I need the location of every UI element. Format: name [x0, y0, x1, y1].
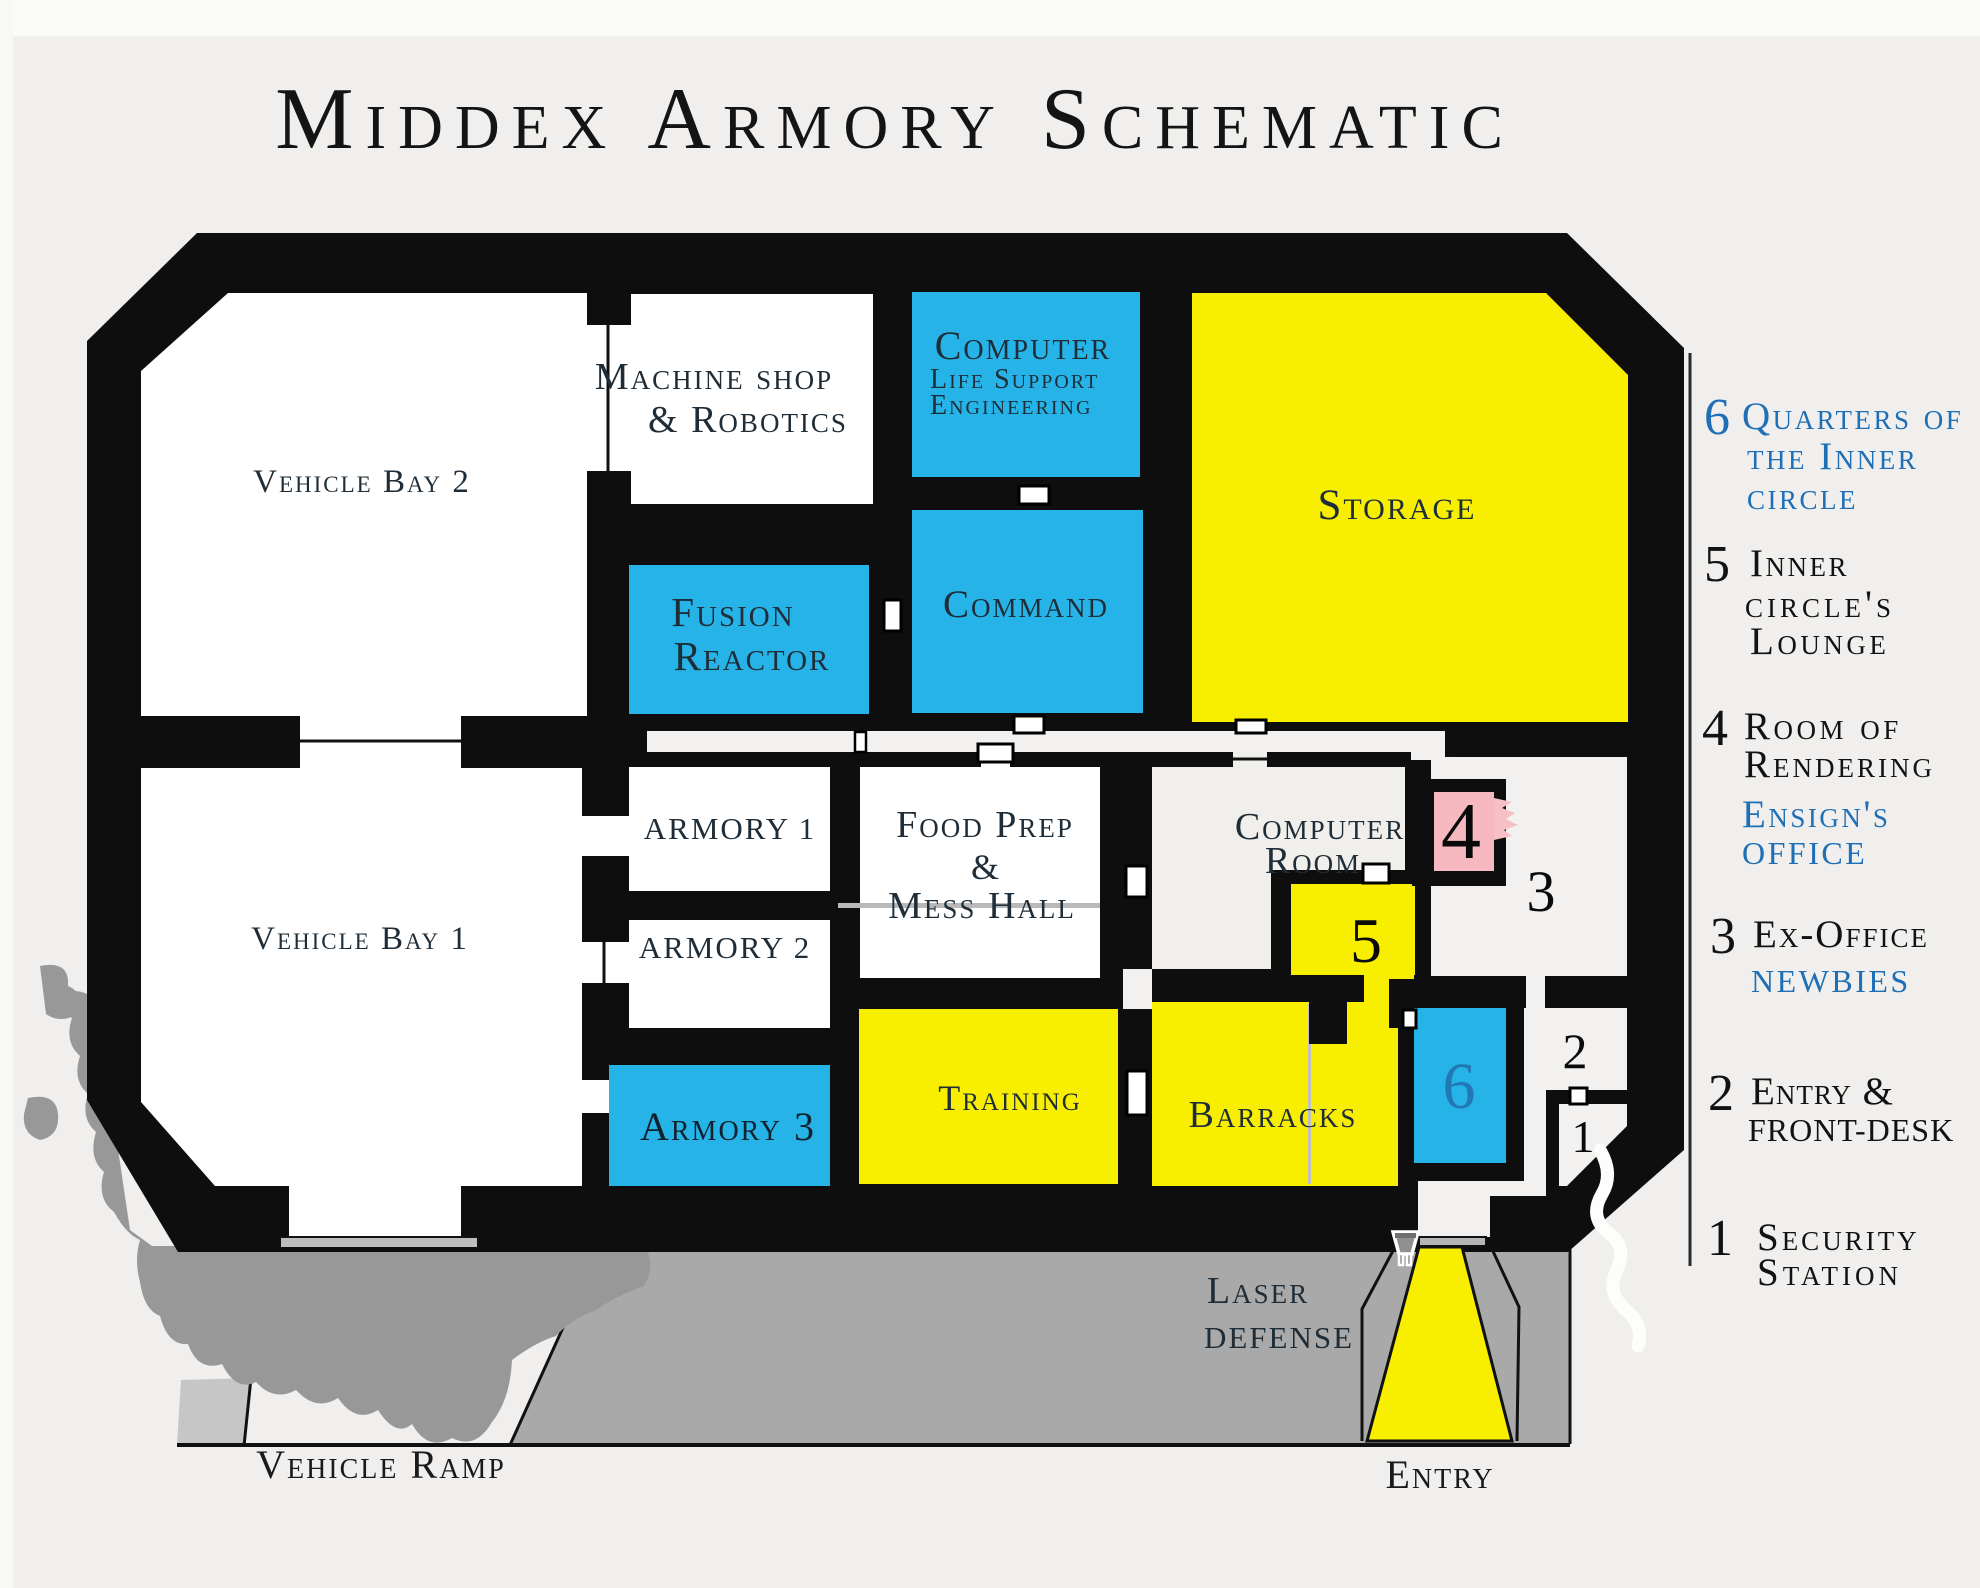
- svg-text:Entry &: Entry &: [1751, 1070, 1894, 1113]
- svg-text:Storage: Storage: [1317, 482, 1476, 529]
- svg-text:4: 4: [1441, 788, 1481, 876]
- svg-text:6: 6: [1443, 1050, 1476, 1123]
- svg-text:Vehicle Bay 1: Vehicle Bay 1: [251, 921, 469, 957]
- svg-text:OFFICE: OFFICE: [1742, 835, 1867, 871]
- svg-text:Training: Training: [938, 1078, 1082, 1118]
- svg-text:1: 1: [1707, 1210, 1733, 1267]
- svg-text:Laser: Laser: [1207, 1270, 1309, 1312]
- svg-text:Barracks: Barracks: [1189, 1094, 1358, 1136]
- svg-text:Rendering: Rendering: [1744, 743, 1935, 786]
- svg-text:the Inner: the Inner: [1747, 435, 1918, 478]
- svg-text:Quarters of: Quarters of: [1742, 395, 1963, 438]
- svg-text:Entry: Entry: [1385, 1452, 1494, 1497]
- svg-text:Inner: Inner: [1750, 542, 1849, 585]
- svg-text:&: &: [971, 847, 1001, 887]
- svg-text:NEWBIES: NEWBIES: [1751, 963, 1911, 999]
- svg-text:& Robotics: & Robotics: [648, 399, 848, 441]
- svg-text:ARMORY 2: ARMORY 2: [639, 930, 811, 965]
- svg-text:circle: circle: [1747, 475, 1858, 518]
- svg-text:DEFENSE: DEFENSE: [1204, 1320, 1354, 1355]
- svg-text:3: 3: [1710, 908, 1736, 965]
- svg-text:Lounge: Lounge: [1750, 620, 1889, 663]
- svg-text:6: 6: [1704, 389, 1730, 446]
- svg-text:Middex Armory Schematic: Middex Armory Schematic: [275, 71, 1515, 168]
- svg-text:Computer: Computer: [935, 323, 1111, 368]
- svg-text:5: 5: [1704, 536, 1730, 593]
- svg-text:2: 2: [1563, 1023, 1588, 1079]
- svg-text:Vehicle Bay 2: Vehicle Bay 2: [253, 464, 471, 500]
- svg-text:3: 3: [1527, 859, 1556, 924]
- svg-text:Armory 3: Armory 3: [640, 1104, 816, 1149]
- svg-text:Station: Station: [1757, 1251, 1902, 1294]
- svg-text:Ensign's: Ensign's: [1742, 793, 1890, 836]
- svg-text:Ex-Office: Ex-Office: [1753, 913, 1929, 956]
- svg-text:Food Prep: Food Prep: [896, 804, 1074, 846]
- svg-text:Room: Room: [1265, 840, 1361, 882]
- svg-text:4: 4: [1702, 700, 1728, 757]
- svg-text:Command: Command: [943, 583, 1109, 626]
- svg-text:Vehicle Ramp: Vehicle Ramp: [256, 1442, 506, 1487]
- svg-text:Machine shop: Machine shop: [595, 356, 833, 398]
- svg-text:FRONT-DESK: FRONT-DESK: [1748, 1112, 1954, 1148]
- svg-text:Fusion: Fusion: [671, 589, 794, 635]
- svg-text:ARMORY 1: ARMORY 1: [644, 811, 816, 846]
- svg-text:Reactor: Reactor: [674, 633, 831, 679]
- svg-text:Room of: Room of: [1744, 705, 1902, 748]
- svg-text:1: 1: [1572, 1111, 1595, 1162]
- svg-text:5: 5: [1350, 905, 1382, 976]
- svg-text:Mess Hall: Mess Hall: [888, 885, 1076, 927]
- svg-text:2: 2: [1708, 1065, 1734, 1122]
- svg-text:Engineering: Engineering: [930, 390, 1092, 421]
